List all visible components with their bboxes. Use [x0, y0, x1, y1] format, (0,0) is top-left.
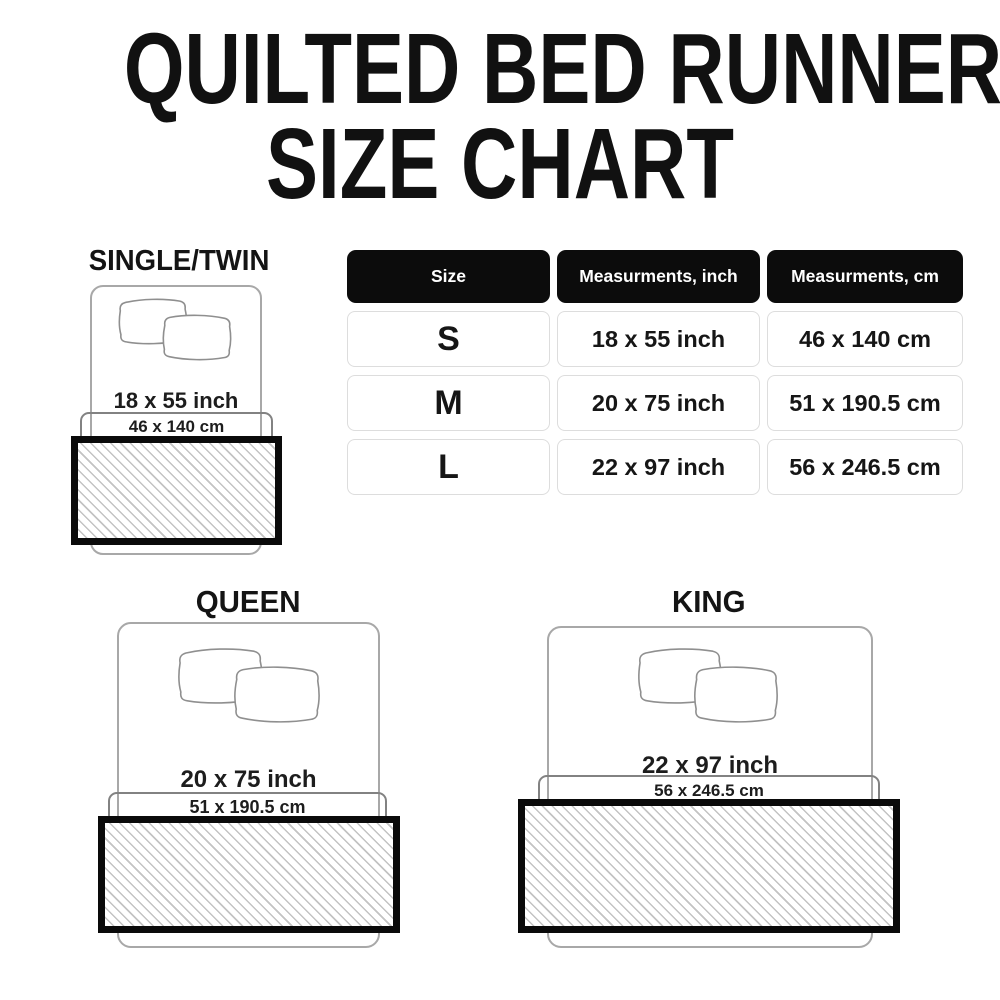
king-label: KING: [609, 584, 809, 620]
size-table: Size Measurments, inch Measurments, cm S…: [347, 250, 963, 495]
table-cell-cm-s: 46 x 140 cm: [767, 311, 963, 367]
table-cell-cm-m: 51 x 190.5 cm: [767, 375, 963, 431]
title-line-1: QUILTED BED RUNNER: [124, 22, 1000, 117]
table-cell-size-l: L: [347, 439, 550, 495]
table-header-cm: Measurments, cm: [767, 250, 963, 303]
king-cm-measurement: 56 x 246.5 cm: [538, 781, 880, 801]
king-runner-swatch: [518, 799, 900, 933]
table-cell-inch-s: 18 x 55 inch: [557, 311, 760, 367]
title-line-2: SIZE CHART: [266, 117, 734, 212]
single-twin-label-text: SINGLE/TWIN: [89, 245, 270, 278]
table-cell-size-s: S: [347, 311, 550, 367]
queen-label: QUEEN: [148, 584, 348, 620]
king-inch-measurement: 22 x 97 inch: [547, 752, 873, 780]
bed-runner-size-chart: QUILTED BED RUNNER SIZE CHART SINGLE/TWI…: [0, 0, 1000, 1000]
single-twin-inch-measurement: 18 x 55 inch: [90, 388, 262, 414]
king-label-text: KING: [672, 584, 746, 620]
pillow-icon: [231, 662, 322, 727]
table-cell-inch-l: 22 x 97 inch: [557, 439, 760, 495]
single-twin-runner-swatch: [71, 436, 282, 545]
table-cell-size-m: M: [347, 375, 550, 431]
table-header-size: Size: [347, 250, 550, 303]
single-twin-label: SINGLE/TWIN: [69, 245, 289, 278]
pillow-icon: [161, 311, 234, 363]
pillow-icon: [691, 662, 780, 727]
queen-runner-swatch: [98, 816, 400, 933]
queen-cm-measurement: 51 x 190.5 cm: [108, 797, 387, 818]
table-header-inch: Measurments, inch: [557, 250, 760, 303]
table-cell-cm-l: 56 x 246.5 cm: [767, 439, 963, 495]
queen-inch-measurement: 20 x 75 inch: [117, 766, 380, 794]
page-title: QUILTED BED RUNNER SIZE CHART: [0, 22, 1000, 212]
single-twin-cm-measurement: 46 x 140 cm: [80, 417, 273, 437]
queen-label-text: QUEEN: [196, 584, 301, 620]
table-cell-inch-m: 20 x 75 inch: [557, 375, 760, 431]
